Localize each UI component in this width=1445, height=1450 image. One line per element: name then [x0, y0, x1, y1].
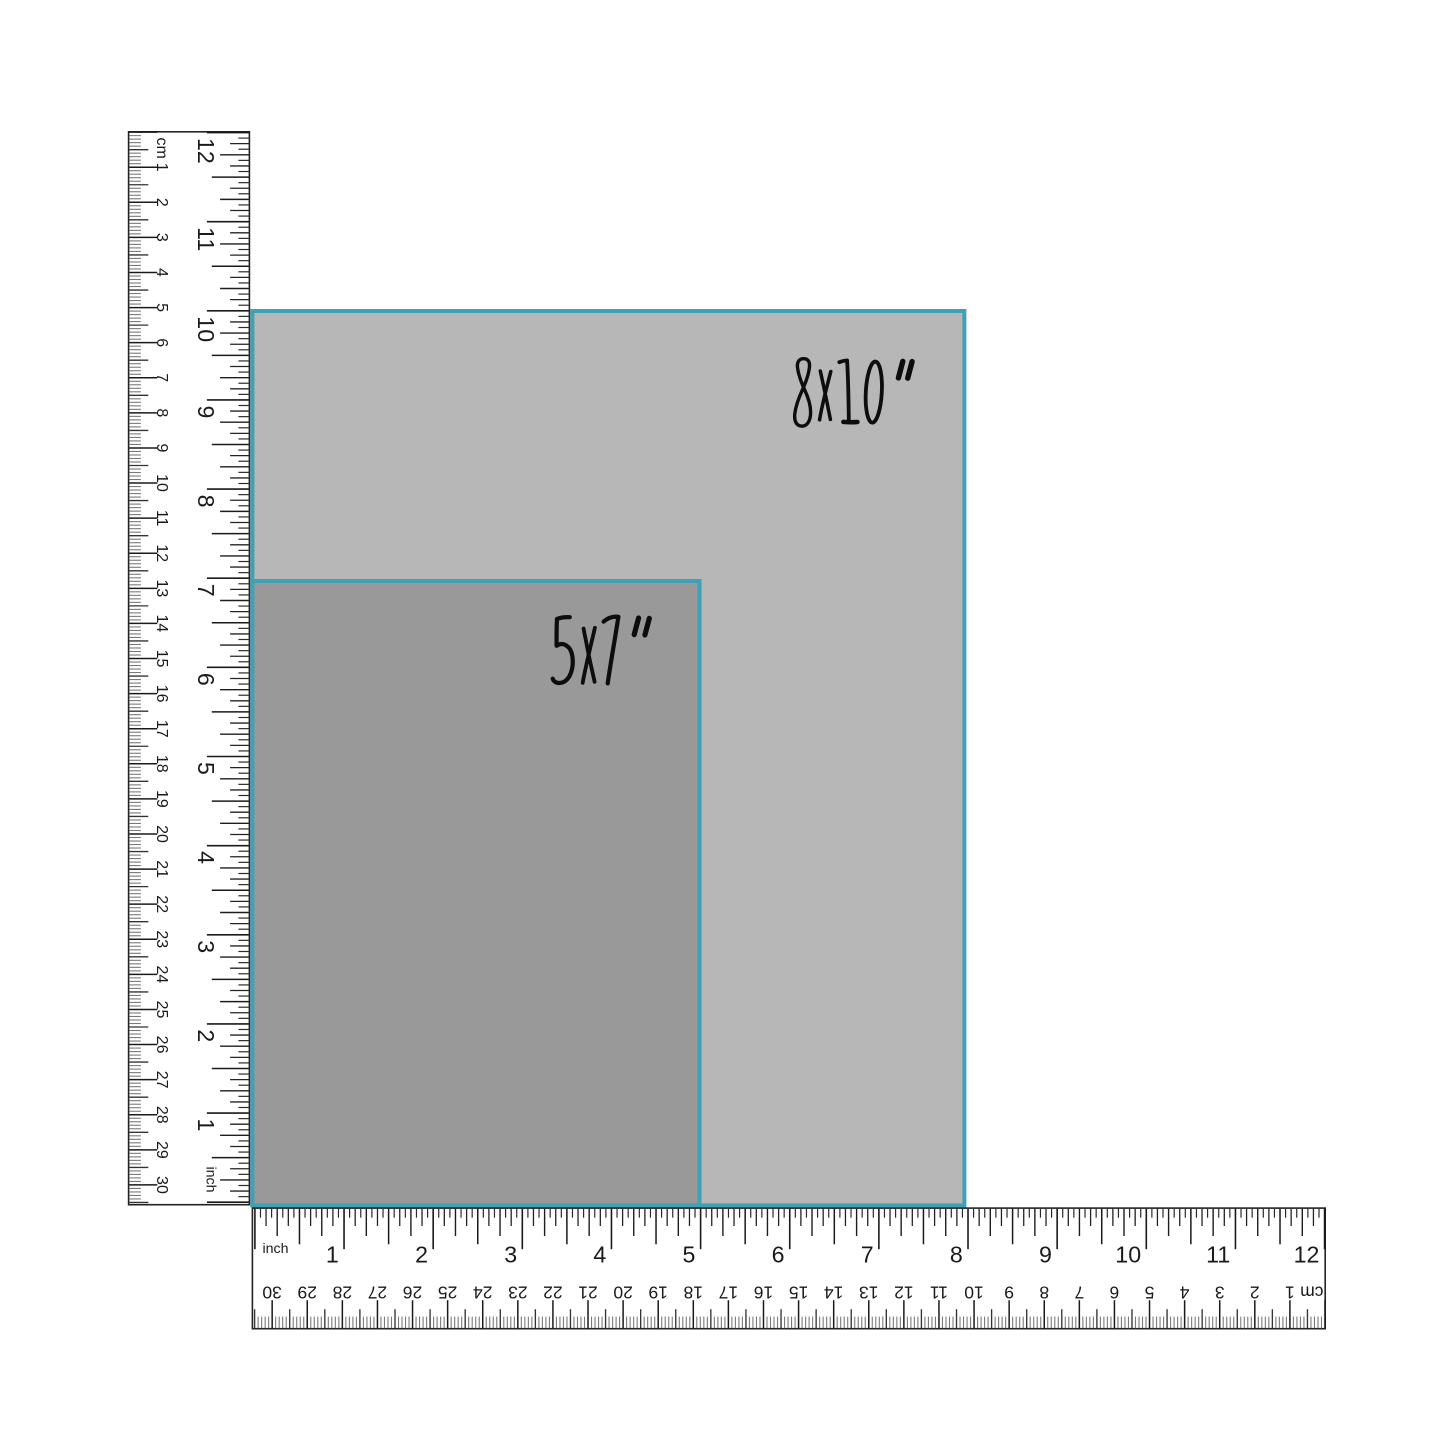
svg-text:8: 8 — [153, 408, 170, 417]
svg-text:22: 22 — [543, 1283, 562, 1303]
svg-text:15: 15 — [153, 650, 170, 668]
svg-text:cm: cm — [1300, 1283, 1323, 1303]
svg-text:10: 10 — [193, 316, 219, 342]
svg-text:11: 11 — [153, 510, 170, 527]
svg-text:23: 23 — [508, 1283, 527, 1303]
svg-text:20: 20 — [153, 825, 170, 843]
svg-text:8: 8 — [950, 1241, 963, 1267]
svg-text:1: 1 — [326, 1241, 339, 1267]
svg-text:4: 4 — [1179, 1283, 1189, 1303]
svg-text:8: 8 — [1039, 1283, 1049, 1303]
svg-text:26: 26 — [403, 1283, 422, 1303]
svg-text:4: 4 — [593, 1241, 606, 1267]
svg-text:6: 6 — [153, 338, 170, 347]
svg-text:2: 2 — [415, 1241, 428, 1267]
svg-text:6: 6 — [772, 1241, 785, 1267]
svg-text:30: 30 — [262, 1283, 282, 1303]
svg-text:15: 15 — [789, 1283, 808, 1303]
svg-text:11: 11 — [193, 227, 219, 251]
svg-text:10: 10 — [153, 474, 170, 492]
svg-text:7: 7 — [861, 1241, 874, 1267]
svg-text:4: 4 — [193, 851, 219, 864]
svg-text:11: 11 — [1206, 1241, 1230, 1267]
svg-text:22: 22 — [153, 895, 170, 913]
svg-text:7: 7 — [1074, 1283, 1084, 1303]
svg-text:9: 9 — [193, 405, 219, 418]
svg-text:5: 5 — [193, 762, 219, 775]
svg-text:27: 27 — [368, 1283, 387, 1303]
svg-text:24: 24 — [473, 1283, 493, 1303]
svg-text:inch: inch — [203, 1167, 219, 1193]
svg-text:21: 21 — [153, 860, 170, 878]
svg-text:13: 13 — [859, 1283, 878, 1303]
svg-text:17: 17 — [153, 720, 170, 738]
svg-text:25: 25 — [153, 1001, 170, 1019]
svg-text:8: 8 — [193, 495, 219, 508]
svg-text:7: 7 — [153, 373, 170, 382]
svg-text:19: 19 — [153, 790, 170, 808]
svg-text:29: 29 — [298, 1283, 317, 1303]
svg-text:13: 13 — [153, 579, 170, 597]
svg-text:19: 19 — [648, 1283, 667, 1303]
svg-text:29: 29 — [153, 1141, 170, 1159]
svg-text:9: 9 — [1039, 1241, 1052, 1267]
svg-text:6: 6 — [193, 673, 219, 686]
svg-text:10: 10 — [964, 1283, 984, 1303]
svg-text:9: 9 — [1004, 1283, 1014, 1303]
svg-text:1: 1 — [153, 163, 170, 172]
svg-text:5: 5 — [682, 1241, 695, 1267]
svg-text:14: 14 — [824, 1283, 844, 1303]
svg-text:28: 28 — [153, 1106, 170, 1124]
svg-text:9: 9 — [153, 443, 170, 452]
svg-text:6: 6 — [1110, 1283, 1120, 1303]
svg-text:12: 12 — [193, 138, 219, 164]
svg-text:25: 25 — [438, 1283, 457, 1303]
svg-text:30: 30 — [153, 1176, 170, 1194]
svg-text:17: 17 — [719, 1283, 738, 1303]
svg-text:14: 14 — [153, 615, 170, 633]
svg-text:4: 4 — [153, 268, 170, 277]
svg-text:12: 12 — [1294, 1241, 1320, 1267]
svg-text:21: 21 — [578, 1283, 597, 1303]
svg-text:23: 23 — [153, 930, 170, 948]
svg-text:11: 11 — [930, 1283, 948, 1303]
svg-text:12: 12 — [153, 544, 170, 562]
svg-text:10: 10 — [1115, 1241, 1141, 1267]
svg-text:1: 1 — [1285, 1283, 1295, 1303]
svg-text:12: 12 — [894, 1283, 913, 1303]
svg-text:5: 5 — [1145, 1283, 1155, 1303]
svg-text:3: 3 — [153, 233, 170, 242]
svg-text:28: 28 — [333, 1283, 352, 1303]
svg-text:20: 20 — [613, 1283, 633, 1303]
svg-text:16: 16 — [153, 685, 170, 703]
svg-text:3: 3 — [193, 940, 219, 953]
svg-text:cm: cm — [153, 138, 170, 159]
svg-text:18: 18 — [684, 1283, 703, 1303]
svg-text:27: 27 — [153, 1071, 170, 1089]
svg-text:24: 24 — [153, 965, 170, 983]
svg-text:18: 18 — [153, 755, 170, 773]
svg-text:5: 5 — [153, 303, 170, 312]
svg-text:7: 7 — [193, 584, 219, 597]
svg-text:2: 2 — [193, 1029, 219, 1042]
svg-text:2: 2 — [153, 198, 170, 207]
svg-text:26: 26 — [153, 1036, 170, 1054]
svg-text:2: 2 — [1250, 1283, 1260, 1303]
svg-text:3: 3 — [504, 1241, 517, 1267]
svg-text:16: 16 — [754, 1283, 773, 1303]
svg-text:inch: inch — [263, 1241, 289, 1257]
svg-text:1: 1 — [193, 1119, 219, 1132]
svg-text:3: 3 — [1215, 1283, 1225, 1303]
